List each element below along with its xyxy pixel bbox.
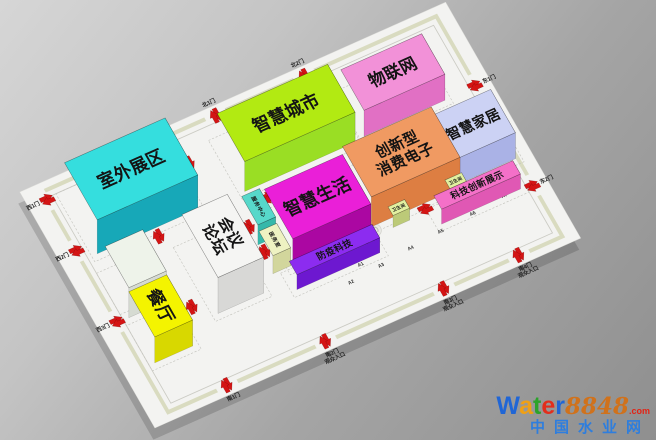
watermark-letter: a bbox=[519, 392, 533, 420]
watermark: Water8848.com 中国水业网 bbox=[496, 393, 650, 436]
watermark-letter: e bbox=[541, 392, 555, 420]
watermark-number: 8848 bbox=[565, 393, 629, 420]
floor-plan: 西1门西2门西3门北1门北2门东1门东2门南1门南2门观众入口南3门观众入口南4… bbox=[9, 0, 594, 440]
watermark-letter: W bbox=[496, 392, 519, 420]
scene: 西1门西2门西3门北1门北2门东1门东2门南1门南2门观众入口南3门观众入口南4… bbox=[0, 0, 656, 440]
watermark-brand: Water bbox=[496, 392, 565, 420]
watermark-line1: Water8848.com bbox=[496, 393, 650, 419]
watermark-chinese-name: 中国水业网 bbox=[496, 420, 650, 436]
watermark-letter: r bbox=[555, 392, 565, 420]
watermark-domain-suffix: .com bbox=[629, 406, 650, 416]
floor-plan-svg: 西1门西2门西3门北1门北2门东1门东2门南1门南2门观众入口南3门观众入口南4… bbox=[0, 0, 656, 440]
